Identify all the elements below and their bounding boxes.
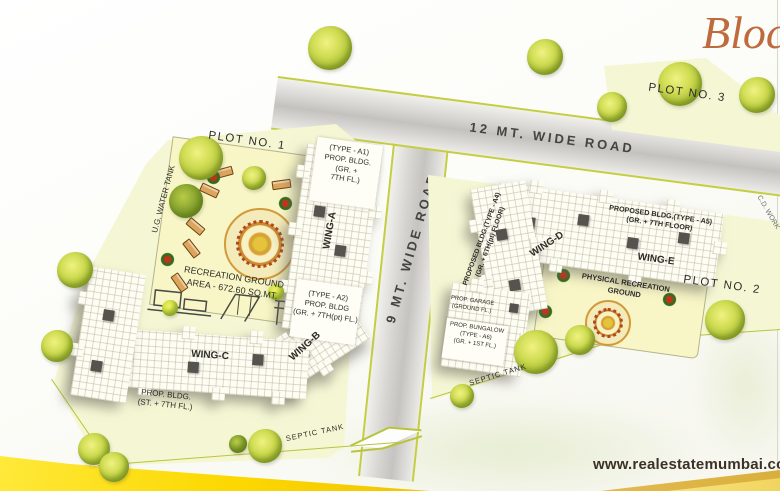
tree-icon (527, 39, 563, 75)
tree-icon (565, 325, 595, 355)
building-notch (182, 326, 196, 340)
bldg-a1-label: (TYPE - A1) PROP. BLDG. (GR. + 7TH FL.) (312, 141, 383, 189)
brand-title: Block (702, 6, 780, 59)
bungalow-labelbox: PROP. BUNGALOW (TYPE - A6) (GR. + 1ST FL… (442, 318, 509, 366)
building-core (678, 232, 690, 244)
flower-icon (278, 196, 293, 211)
building-core (334, 245, 346, 257)
bldg-a1-labelbox: (TYPE - A1) PROP. BLDG. (GR. + 7TH FL.) (309, 137, 383, 210)
building-core (577, 214, 589, 226)
building-core (509, 303, 519, 313)
building-core (508, 279, 521, 292)
building-notch (712, 241, 727, 256)
building-core (313, 205, 325, 217)
building-core (102, 309, 115, 322)
building-notch (249, 331, 263, 345)
garden-circle-icon (224, 208, 296, 280)
building-core (187, 361, 199, 373)
tree-icon (308, 26, 352, 70)
building-notch (77, 291, 92, 306)
building-core (90, 360, 103, 373)
building-notch (529, 180, 544, 195)
building-notch (358, 270, 373, 285)
building-notch (296, 164, 311, 179)
building-notch (271, 391, 285, 405)
building-core (626, 237, 638, 249)
website-url: www.realestatemumbai.com (593, 456, 780, 473)
tree-icon (739, 77, 775, 113)
bungalow-label: PROP. BUNGALOW (TYPE - A6) (GR. + 1ST FL… (443, 321, 508, 353)
road-9mt-label: 9 MT. WIDE ROAD (383, 186, 436, 325)
site-plan: 9 MT. WIDE ROAD 12 MT. WIDE ROAD (0, 0, 780, 491)
building-core (252, 354, 264, 366)
building-notch (287, 222, 302, 237)
